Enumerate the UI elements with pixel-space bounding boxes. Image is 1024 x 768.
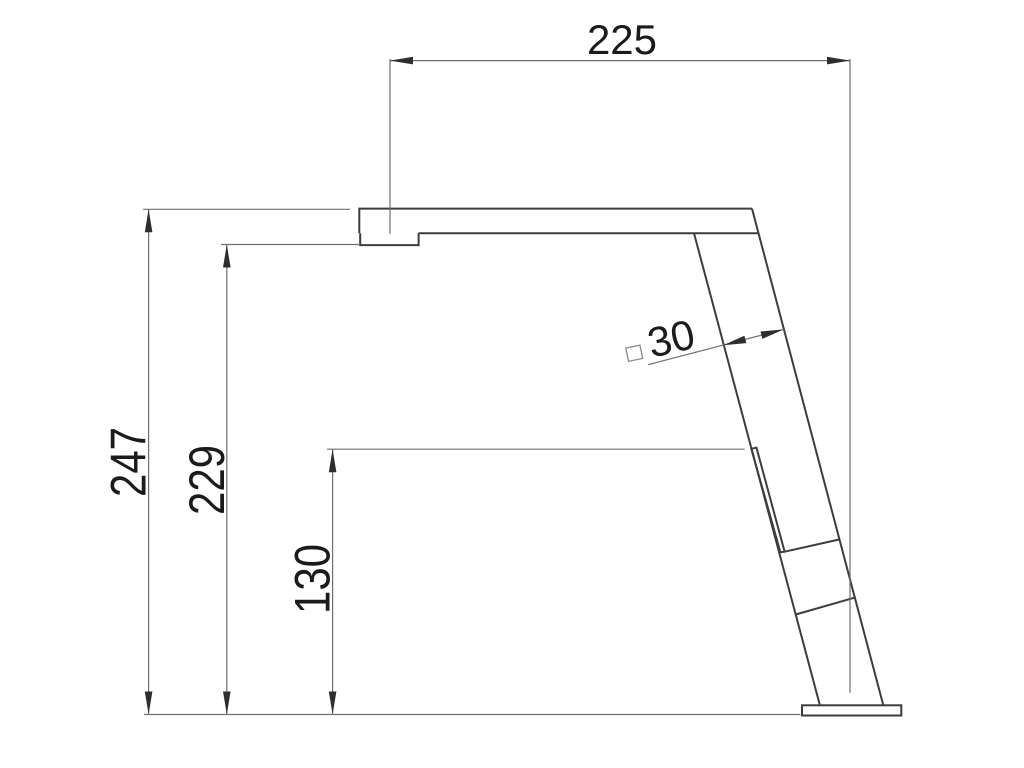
svg-text:130: 130 (284, 544, 340, 614)
svg-text:247: 247 (100, 427, 156, 497)
svg-text:225: 225 (587, 16, 657, 63)
svg-text:229: 229 (178, 445, 234, 515)
